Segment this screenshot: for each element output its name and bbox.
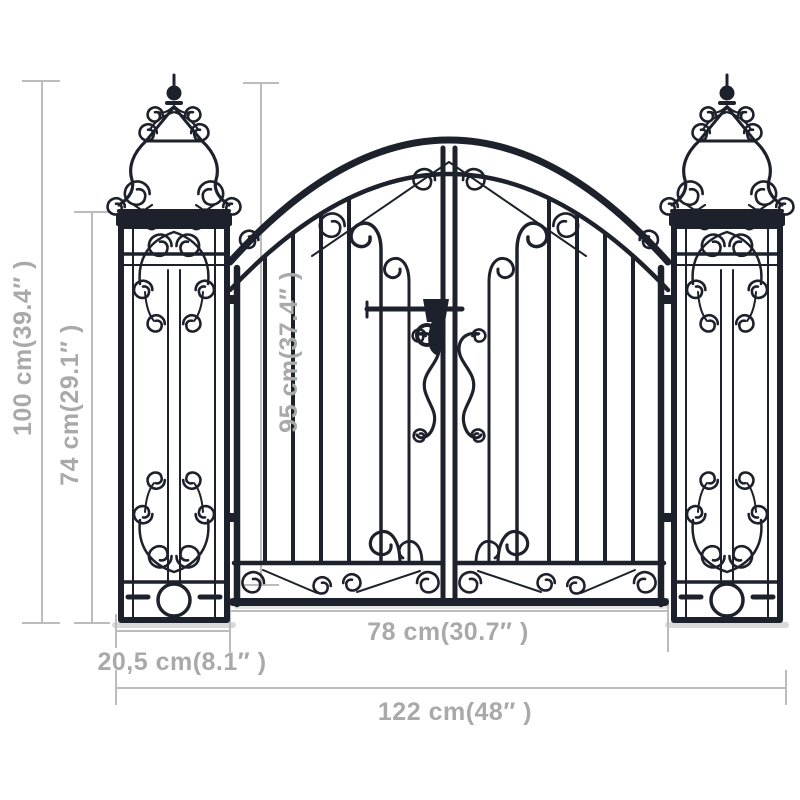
dimension-label-overall-height: 100 cm(39.4″ ) <box>9 188 37 508</box>
product-diagram: 100 cm(39.4″ ) 74 cm(29.1″ ) 95 cm(37.4″… <box>0 0 800 800</box>
dim-gate-height-line <box>243 83 279 585</box>
dimension-label-gate-height: 95 cm(37.4″ ) <box>275 192 303 512</box>
dimension-label-gate-width: 78 cm(30.7″ ) <box>288 618 608 646</box>
bottom-band-ornaments <box>242 570 655 593</box>
lower-scrolls <box>370 532 527 563</box>
right-leaf-bars <box>489 198 633 563</box>
right-pillar <box>661 75 794 620</box>
pillar-base-circle <box>158 584 190 616</box>
center-stiles <box>443 148 455 602</box>
finial-knob <box>167 86 182 101</box>
pillar-finial <box>108 75 241 229</box>
dimension-label-pillar-height: 74 cm(29.1″ ) <box>56 245 84 565</box>
lock-plate <box>423 299 449 322</box>
gate-illustration <box>0 0 800 800</box>
dimension-label-pillar-width: 20,5 cm(8.1″ ) <box>22 648 342 676</box>
left-pillar <box>108 75 241 620</box>
pillar-frame <box>121 226 227 620</box>
dimension-label-overall-width: 122 cm(48″ ) <box>295 698 615 726</box>
